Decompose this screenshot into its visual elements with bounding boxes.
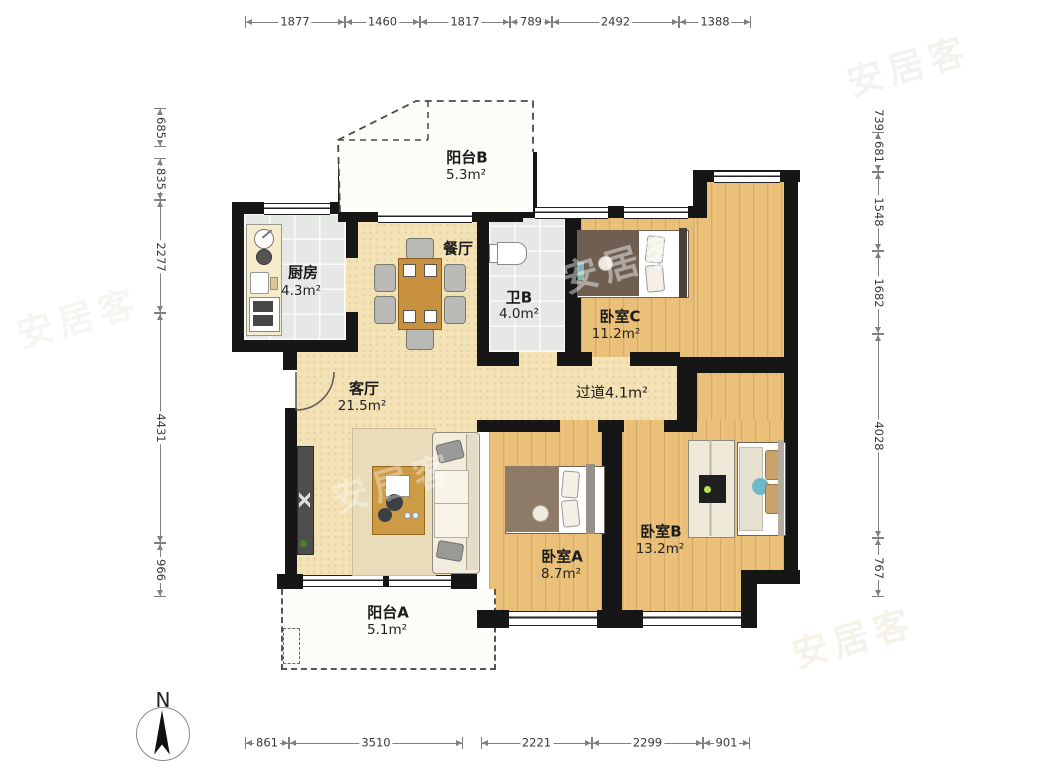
dimension-segment: 2277 — [152, 200, 168, 313]
dimension-segment: 2221 — [481, 735, 592, 751]
dimension-segment: 739 — [870, 108, 886, 132]
room-label-bedroom-a: 卧室A — [541, 546, 583, 567]
dimension-segment: 2492 — [552, 14, 679, 30]
room-area-kitchen: 4.3m² — [281, 283, 321, 299]
hallway-area: 4.1m² — [605, 386, 648, 402]
dimension-segment: 1682 — [870, 251, 886, 334]
dimension-segment: 1460 — [345, 14, 420, 30]
dimension-value: 2492 — [599, 16, 632, 29]
dimension-segment: 966 — [152, 543, 168, 597]
room-area-bedroom-a: 8.7m² — [541, 566, 581, 582]
dimension-segment: 861 — [245, 735, 289, 751]
dimension-value: 767 — [872, 555, 884, 581]
dimension-value: 681 — [872, 139, 884, 165]
entry-door-arc — [296, 372, 334, 410]
dimension-segment: 1817 — [420, 14, 510, 30]
dimension-segment: 681 — [870, 132, 886, 172]
dimension-value: 1682 — [872, 276, 884, 309]
room-label-bath-b: 卫B — [506, 287, 532, 308]
dimension-segment: 685 — [152, 108, 168, 147]
room-label-balcony-b: 阳台B — [446, 147, 487, 168]
room-area-balcony-b: 5.3m² — [446, 167, 486, 183]
room-area-bedroom-c: 11.2m² — [592, 326, 641, 342]
room-label-living: 客厅 — [349, 378, 379, 399]
dimension-segment: 1548 — [870, 172, 886, 251]
balcony-b-floor — [338, 101, 533, 212]
room-label-dining: 餐厅 — [443, 238, 473, 259]
dimension-value: 901 — [714, 737, 740, 750]
dimension-value: 2221 — [520, 737, 553, 750]
dimension-value: 3510 — [359, 737, 392, 750]
dimension-value: 861 — [254, 737, 280, 750]
room-label-kitchen: 厨房 — [288, 262, 318, 283]
hallway-name: 过道 — [576, 386, 605, 402]
dimension-value: 1460 — [366, 16, 399, 29]
dimension-segment: 767 — [870, 538, 886, 597]
dimension-segment: 835 — [152, 158, 168, 200]
dimension-segment: 4028 — [870, 334, 886, 538]
room-label-bedroom-c: 卧室C — [599, 306, 640, 327]
room-area-bedroom-b: 13.2m² — [636, 541, 685, 557]
dimension-segment: 1388 — [679, 14, 751, 30]
dimension-segment: 789 — [510, 14, 552, 30]
dimension-value: 2299 — [631, 737, 664, 750]
room-area-balcony-a: 5.1m² — [367, 622, 407, 638]
dimension-value: 1877 — [278, 16, 311, 29]
dimension-segment: 901 — [703, 735, 750, 751]
dimension-segment: 1877 — [245, 14, 345, 30]
dimension-segment: 3510 — [289, 735, 463, 751]
dimension-value: 966 — [154, 557, 166, 583]
room-label-bedroom-b: 卧室B — [640, 521, 681, 542]
dimension-value: 1817 — [448, 16, 481, 29]
dimension-value: 685 — [154, 115, 166, 141]
dimension-value: 1548 — [872, 195, 884, 228]
dimension-segment: 2299 — [592, 735, 703, 751]
floor-plan: 阳台B 5.3m² 厨房 4.3m² 餐厅 卫B 4.0m² 卧室C 11.2m… — [0, 0, 1038, 775]
room-area-bath-b: 4.0m² — [499, 306, 539, 322]
dimension-value: 4431 — [154, 411, 166, 444]
dimension-value: 835 — [154, 166, 166, 192]
dimension-value: 789 — [518, 16, 544, 29]
dimension-value: 4028 — [872, 419, 884, 452]
compass-north-label: N — [156, 688, 171, 712]
dimension-value: 2277 — [154, 240, 166, 273]
room-area-living: 21.5m² — [338, 398, 387, 414]
room-label-balcony-a: 阳台A — [367, 602, 409, 623]
dimension-segment: 4431 — [152, 313, 168, 543]
dimension-value: 739 — [872, 107, 884, 133]
room-label-hallway: 过道4.1m² — [576, 382, 648, 403]
dimension-value: 1388 — [698, 16, 731, 29]
